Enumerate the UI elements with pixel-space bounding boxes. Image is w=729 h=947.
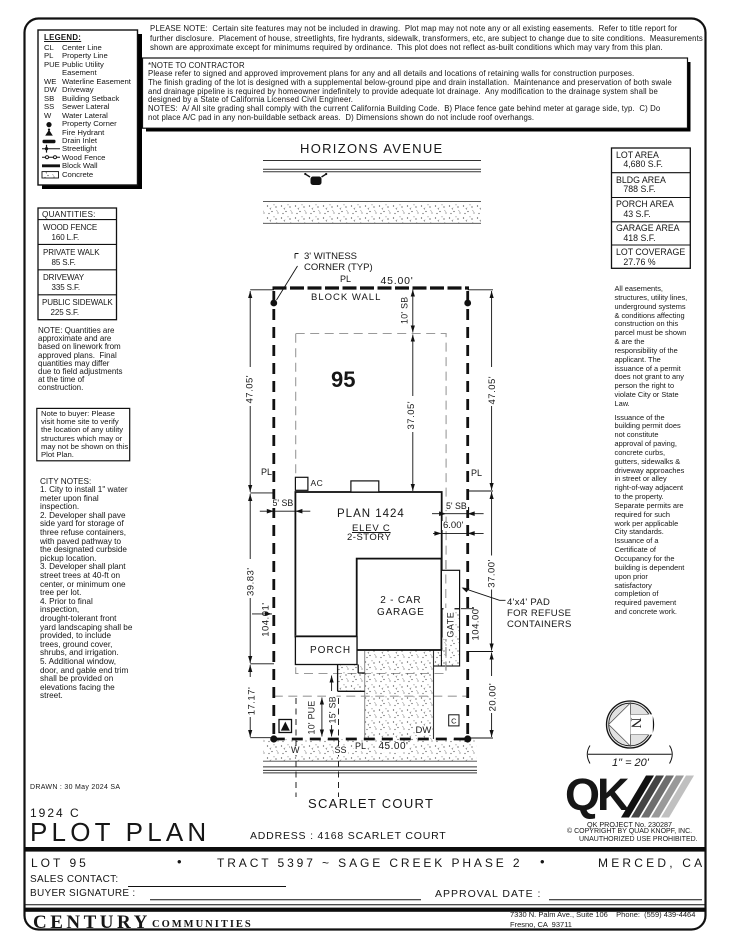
svg-text:37.00': 37.00' [487,559,498,588]
svg-text:37.05': 37.05' [406,401,417,430]
svg-text:C: C [451,717,457,726]
svg-text:104.00': 104.00' [471,606,482,640]
svg-text:20.00': 20.00' [488,683,499,712]
svg-text:39.83': 39.83' [246,567,257,596]
svg-text:10' SB: 10' SB [399,297,409,324]
svg-text:N: N [628,718,644,729]
svg-text:47.05': 47.05' [487,376,498,405]
svg-text:10' PUE: 10' PUE [307,700,317,734]
svg-text:GATE: GATE [446,612,456,638]
svg-text:47.05': 47.05' [245,375,256,404]
svg-text:15' SB: 15' SB [327,696,337,723]
svg-text:104.01': 104.01' [261,602,272,636]
svg-text:17.17': 17.17' [247,687,258,716]
